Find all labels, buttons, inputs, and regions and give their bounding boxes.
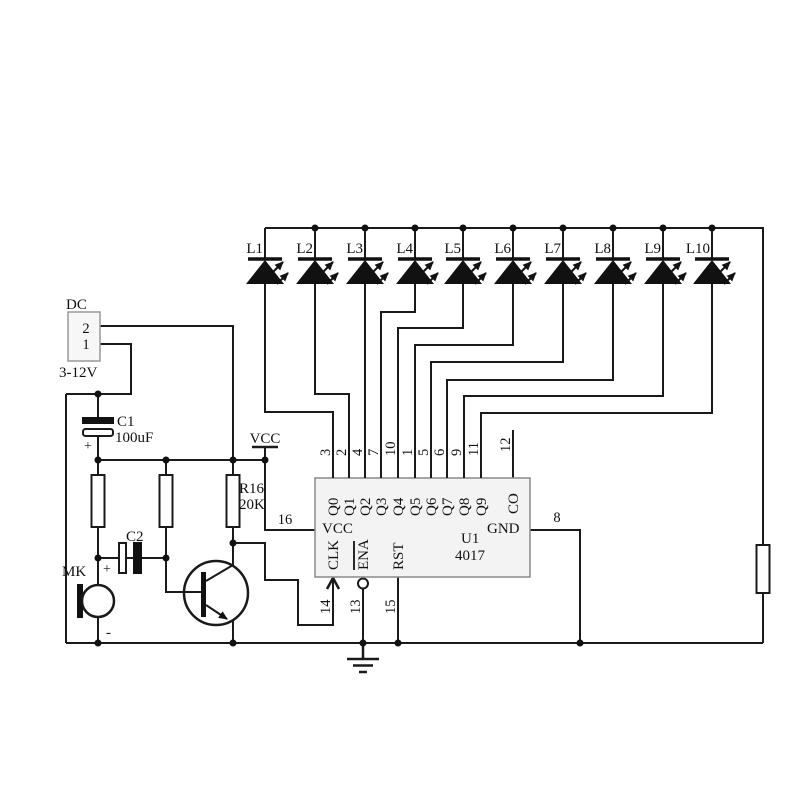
ic-part-label: 4017 — [455, 548, 486, 564]
led-l8-wire — [447, 228, 613, 478]
c2-plus-mark: + — [103, 562, 111, 577]
ic-vcc-label: VCC — [322, 521, 353, 537]
pin-number-co: 12 — [498, 438, 514, 453]
junction-dot — [610, 225, 617, 232]
resistor-led-common — [757, 545, 770, 593]
c2-plate-right — [133, 542, 142, 574]
r16-body — [227, 475, 240, 527]
led-l10-symbol — [693, 259, 735, 284]
pin-number-q7: 6 — [432, 449, 448, 456]
led-l5-symbol — [444, 259, 486, 284]
led-l8-symbol — [594, 259, 636, 284]
junction-dot — [460, 225, 467, 232]
r-common-body — [757, 545, 770, 593]
ic-q9-label: Q9 — [474, 498, 490, 516]
r16-ref-label: R16 — [239, 481, 265, 497]
c1-plus-mark: + — [84, 439, 92, 454]
transistor-emitter-arrow — [206, 605, 227, 619]
c1-value-label: 100uF — [115, 430, 153, 446]
resistor-r16: R16 20K — [227, 460, 266, 565]
c1-plate-bottom — [83, 429, 113, 436]
pin-number-q9: 11 — [466, 442, 482, 456]
capacitor-c2: C2 + — [98, 529, 166, 577]
ic-q0-label: Q0 — [326, 498, 342, 516]
transistor-base-bar — [201, 572, 206, 617]
ic-q7-label: Q7 — [440, 497, 456, 516]
led-l7-label: L7 — [544, 241, 561, 257]
ic-u1-4017: VCC CLK ENA RST GND U1 4017 Q0 Q1 Q2 Q3 … — [315, 478, 530, 577]
led-l5-label: L5 — [444, 241, 461, 257]
ic-q2-label: Q2 — [358, 498, 374, 516]
r16-value-label: 20K — [239, 497, 265, 513]
led-l2-symbol — [296, 259, 338, 284]
led-l6-label: L6 — [494, 241, 511, 257]
led-l4-label: L4 — [396, 241, 413, 257]
led-l1-symbol — [246, 259, 288, 284]
dc-connector: DC 2 1 3-12V — [59, 297, 100, 381]
transistor-collector-wire — [206, 565, 233, 581]
led-l8-label: L8 — [594, 241, 611, 257]
led-l8: L8 — [447, 225, 636, 479]
junction-dot — [412, 225, 419, 232]
mic-body — [82, 585, 114, 617]
schematic-page: DC 2 1 3-12V C1 100uF + VCC R16 20K — [0, 0, 800, 800]
ground-symbol — [347, 643, 379, 672]
ic-q3-label: Q3 — [374, 498, 390, 516]
led-l7-wire — [431, 228, 563, 478]
ic-q4-label: Q4 — [391, 497, 407, 516]
led-l7-symbol — [544, 259, 586, 284]
led-l3-symbol — [346, 259, 388, 284]
pin-number-q1: 2 — [334, 449, 350, 456]
c1-plate-top — [82, 417, 114, 424]
pin-number-q0: 3 — [318, 449, 334, 456]
led-l1-label: L1 — [246, 241, 263, 257]
mic-minus-mark: - — [106, 625, 111, 641]
led-l2-label: L2 — [296, 241, 313, 257]
mic-ref-label: MK — [62, 564, 86, 580]
vcc-symbol-label: VCC — [250, 431, 281, 447]
transistor-npn — [184, 561, 248, 643]
ic-ref-label: U1 — [461, 531, 479, 547]
c1-ref-label: C1 — [117, 414, 135, 430]
ic-q6-label: Q6 — [424, 497, 440, 516]
dc-pin1-label: 1 — [82, 337, 89, 353]
junction-dot — [709, 225, 716, 232]
junction-dot — [362, 225, 369, 232]
led-l6-symbol — [494, 259, 536, 284]
circuit-schematic: DC 2 1 3-12V C1 100uF + VCC R16 20K — [0, 0, 800, 800]
led-l3-label: L3 — [346, 241, 363, 257]
pin-number-q4: 10 — [383, 442, 399, 457]
r1-body — [92, 475, 105, 527]
ic-gnd-label: GND — [487, 521, 520, 537]
pin-number-gnd: 8 — [553, 510, 560, 526]
junction-dot — [560, 225, 567, 232]
pin-number-q2: 4 — [350, 448, 366, 456]
dc-pin2-label: 2 — [82, 321, 89, 337]
ic-ena-label-group: ENA — [354, 539, 372, 570]
led-l10: L10 — [481, 225, 735, 479]
junction-dot — [660, 225, 667, 232]
ic-ena-label: ENA — [356, 539, 372, 570]
led-l5: L5 — [398, 225, 486, 479]
gnd-pin8-wire — [530, 530, 580, 643]
pin-number-q3: 7 — [366, 449, 382, 456]
led-l4: L4 — [381, 225, 438, 479]
r2-body — [160, 475, 173, 527]
dc-voltage-label: 3-12V — [59, 365, 97, 381]
pin-number-q8: 9 — [449, 449, 465, 456]
vcc-power-symbol: VCC — [250, 431, 281, 460]
pin-number-q5: 1 — [400, 449, 416, 456]
ic-q5-label: Q5 — [408, 498, 424, 516]
led-l2: L2 — [296, 225, 349, 479]
junction-dot — [510, 225, 517, 232]
pin-number-clk: 14 — [318, 599, 334, 614]
ic-clk-label: CLK — [326, 540, 342, 570]
dc-connector-label: DC — [66, 297, 87, 313]
pin-number-rst: 15 — [383, 600, 399, 615]
ic-co-label: CO — [506, 493, 522, 514]
ena-inversion-bubble — [358, 579, 368, 589]
pin-number-vcc: 16 — [278, 512, 293, 528]
c2-plate-left — [119, 543, 126, 573]
led-l4-symbol — [396, 259, 438, 284]
capacitor-c1: C1 100uF + — [82, 394, 153, 460]
pin-number-ena: 13 — [348, 600, 364, 615]
led-l9-label: L9 — [644, 241, 661, 257]
c2-ref-label: C2 — [126, 529, 144, 545]
led-l9-symbol — [644, 259, 686, 284]
pin-number-q6: 5 — [416, 449, 432, 456]
ic-rst-label: RST — [391, 542, 407, 570]
resistor-base-bias — [160, 460, 202, 592]
ic-q1-label: Q1 — [342, 498, 358, 516]
junction-dot — [312, 225, 319, 232]
ic-q8-label: Q8 — [457, 498, 473, 516]
led-l10-label: L10 — [686, 241, 710, 257]
